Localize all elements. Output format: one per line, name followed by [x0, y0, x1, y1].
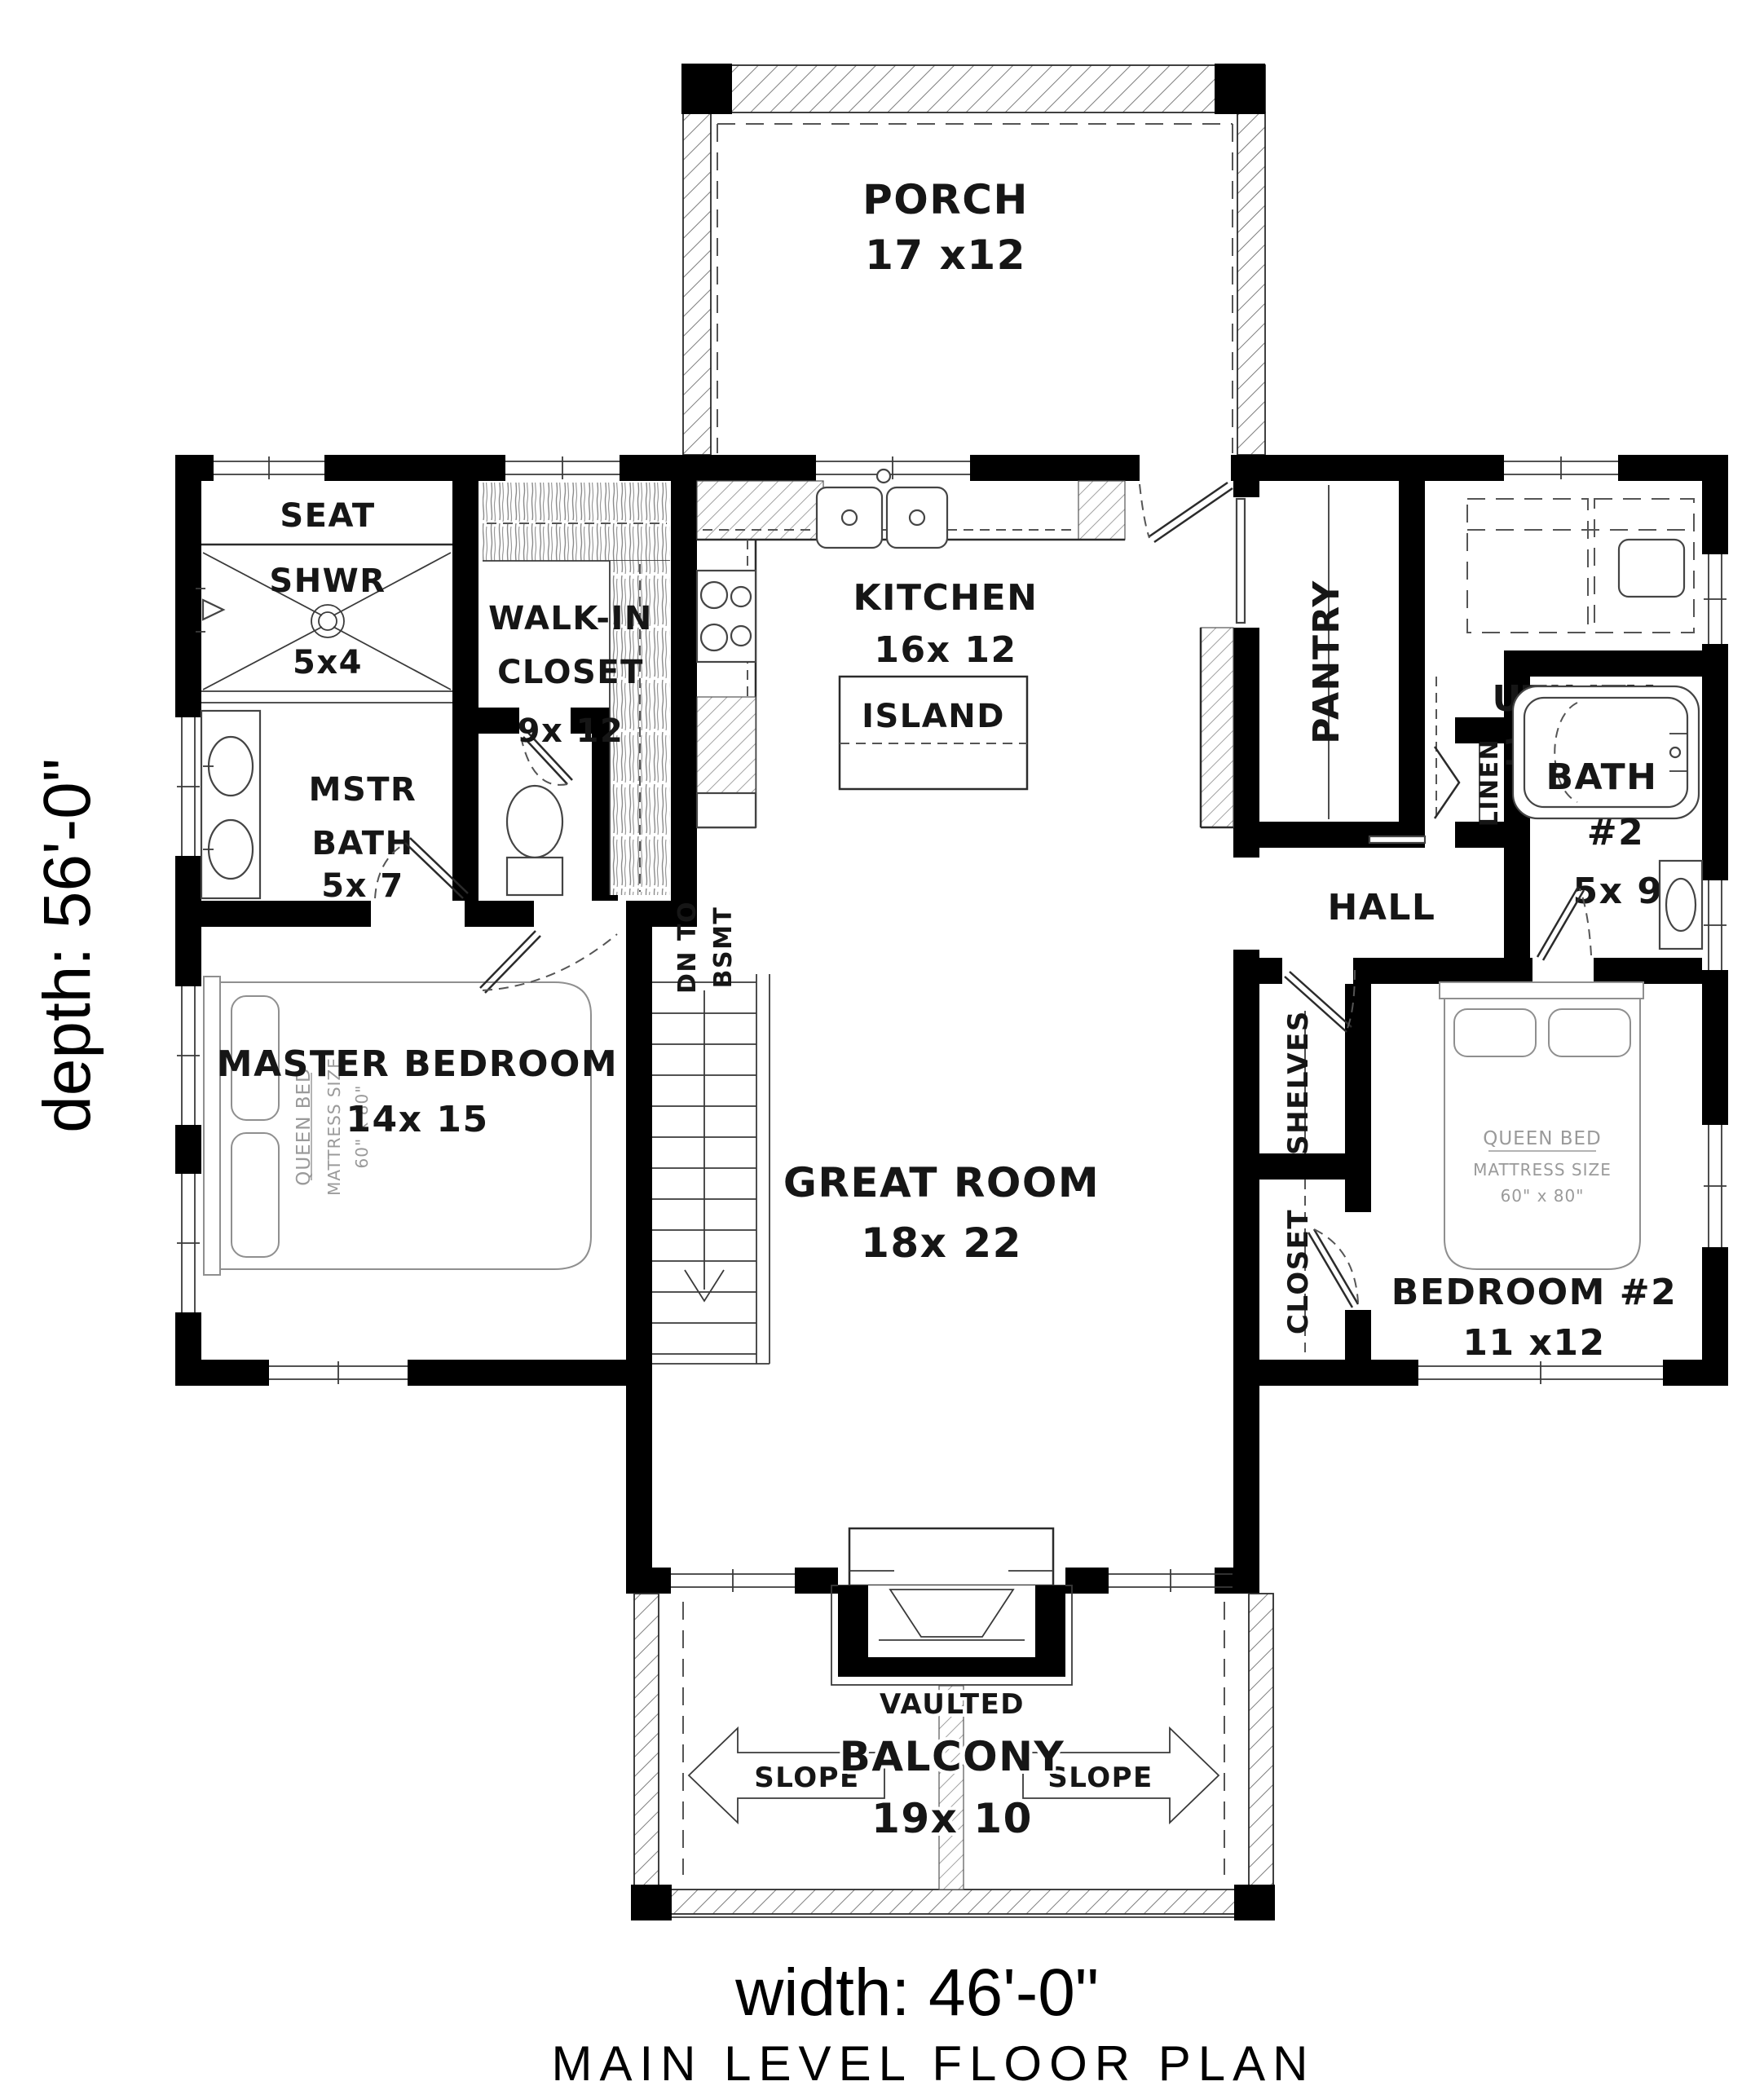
floor-plan-canvas: PORCH 17 x12 [0, 0, 1764, 2099]
refrigerator-icon [697, 697, 756, 793]
master-shower: SEAT SHWR 5x4 [196, 497, 452, 703]
shower-head-icon [203, 600, 223, 620]
porch-size: 17 x12 [865, 232, 1026, 279]
balcony-modifier: VAULTED [880, 1688, 1025, 1721]
balcony-right-railing [1249, 1594, 1273, 1891]
balcony-label: BALCONY [840, 1733, 1065, 1780]
toilet-icon [507, 786, 562, 858]
mstr-bath-label-1: MSTR [309, 771, 417, 809]
bath-sink-1 [209, 737, 253, 796]
bath2-sink [1666, 879, 1696, 931]
bedroom2-label: BEDROOM #2 [1391, 1272, 1677, 1313]
stairs: DN TO BSMT [652, 901, 770, 1364]
shower-label-2: SHWR [269, 562, 386, 600]
plan-title: MAIN LEVEL FLOOR PLAN [551, 2036, 1315, 2091]
kitchen-faucet-icon [877, 470, 890, 483]
kitchen-label: KITCHEN [853, 577, 1039, 619]
closet-label-1: WALK-IN [488, 600, 653, 637]
stairs-label-1: DN TO [673, 901, 702, 994]
shower-label-1: SEAT [280, 497, 375, 535]
master-bed-pillow-2 [232, 1133, 279, 1257]
bath2-size: 5x 9 [1573, 871, 1664, 912]
balcony-post-left [631, 1885, 672, 1920]
bed2-pillow-1 [1454, 1009, 1536, 1056]
master-bed-headboard [204, 977, 220, 1275]
porch-post-right [1215, 64, 1265, 114]
bath2: BATH #2 5x 9 [1513, 686, 1702, 960]
porch-post-left [681, 64, 732, 114]
bedroom2: QUEEN BED MATTRESS SIZE 60" x 80" BEDROO… [1391, 982, 1677, 1364]
balcony-left-railing [634, 1594, 659, 1891]
hall-label: HALL [1328, 887, 1436, 928]
fireplace [831, 1528, 1072, 1685]
closet-size: 9x 12 [518, 712, 624, 750]
great-room: GREAT ROOM 18x 22 [783, 1159, 1100, 1267]
pantry-door [1237, 499, 1245, 623]
shower-size: 5x4 [293, 644, 363, 681]
mstr-bath-label-2: BATH [311, 825, 413, 862]
porch-top-railing [683, 65, 1265, 112]
master-bedroom-label: MASTER BEDROOM [217, 1043, 618, 1085]
master-bedroom: QUEEN BED MATTRESS SIZE 60" x 80" MASTER… [204, 931, 618, 1275]
bath2-label-1: BATH [1546, 756, 1657, 798]
kitchen-size: 16x 12 [874, 629, 1017, 671]
linen-label: LINEN [1475, 739, 1504, 827]
depth-dimension: depth: 56'-0" [30, 758, 104, 1133]
stairs-label-2: BSMT [709, 906, 738, 989]
bath-sink-2 [209, 820, 253, 879]
washer-icon [1467, 499, 1588, 633]
island-label: ISLAND [862, 698, 1005, 735]
fireplace-hearth [849, 1528, 1053, 1585]
kitchen: KITCHEN 16x 12 ISLAND [697, 470, 1233, 827]
bed2-pillow-2 [1549, 1009, 1630, 1056]
bath2-label-2: #2 [1587, 812, 1644, 853]
toilet-tank [507, 858, 562, 895]
closet2-label: CLOSET [1282, 1209, 1315, 1334]
great-room-label: GREAT ROOM [783, 1159, 1100, 1206]
closet-label-2: CLOSET [497, 654, 644, 691]
entry-door [1149, 483, 1233, 542]
bed2-headboard [1440, 982, 1643, 999]
great-room-size: 18x 22 [861, 1219, 1022, 1267]
width-dimension: width: 46'-0" [734, 1956, 1099, 2030]
windows-bottom [269, 1361, 1663, 1592]
porch-right-railing [1237, 112, 1265, 455]
windows-left [177, 717, 200, 1312]
balcony-size: 19x 10 [871, 1795, 1033, 1842]
balcony-post-right [1234, 1885, 1275, 1920]
linen-bifold-door [1435, 747, 1459, 818]
balcony-bottom-railing [634, 1890, 1273, 1914]
porch-label: PORCH [862, 176, 1029, 223]
bedroom2-size: 11 x12 [1462, 1322, 1605, 1364]
bed2-text-3: 60" x 80" [1501, 1186, 1585, 1206]
bed2-text-1: QUEEN BED [1483, 1128, 1602, 1149]
pantry-label: PANTRY [1306, 580, 1347, 743]
shelves-label: SHELVES [1282, 1010, 1315, 1155]
master-bedroom-size: 14x 15 [346, 1099, 488, 1140]
mstr-bath-size: 5x 7 [321, 867, 404, 905]
porch-left-railing [683, 112, 711, 455]
bed2-text-2: MATTRESS SIZE [1473, 1160, 1612, 1180]
porch: PORCH 17 x12 [681, 64, 1265, 455]
